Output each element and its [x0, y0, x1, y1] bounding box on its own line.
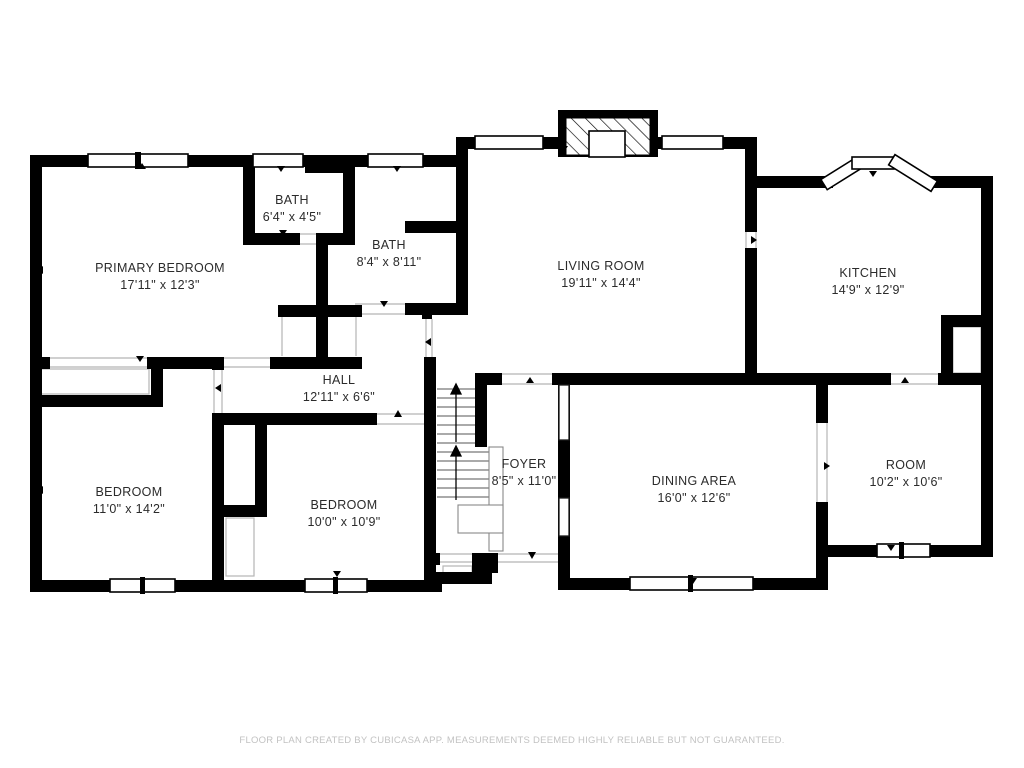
room-dimensions: 17'11" x 12'3": [120, 277, 199, 294]
room-name: PRIMARY BEDROOM: [95, 260, 225, 277]
room-name: BEDROOM: [310, 497, 377, 514]
floor-plan-svg: [0, 0, 1024, 768]
room-label-dining-area: DINING AREA 16'0" x 12'6": [652, 473, 736, 507]
room-dimensions: 10'2" x 10'6": [869, 474, 942, 491]
room-name: BEDROOM: [95, 484, 162, 501]
room-dimensions: 10'0" x 10'9": [307, 514, 380, 531]
room-label-bedroom-left: BEDROOM 11'0" x 14'2": [93, 484, 165, 518]
room-dimensions: 12'11" x 6'6": [303, 389, 375, 406]
room-name: KITCHEN: [839, 265, 896, 282]
room-label-primary-bedroom: PRIMARY BEDROOM 17'11" x 12'3": [95, 260, 225, 294]
room-dimensions: 16'0" x 12'6": [657, 490, 730, 507]
room-label-bedroom-middle: BEDROOM 10'0" x 10'9": [307, 497, 380, 531]
room-label-living-room: LIVING ROOM 19'11" x 14'4": [557, 258, 644, 292]
footer-disclaimer: FLOOR PLAN CREATED BY CUBICASA APP. MEAS…: [0, 735, 1024, 746]
room-dimensions: 14'9" x 12'9": [831, 282, 904, 299]
room-label-foyer: FOYER 8'5" x 11'0": [492, 456, 557, 490]
floor-plan: PRIMARY BEDROOM 17'11" x 12'3" BATH 6'4"…: [0, 0, 1024, 768]
room-name: BATH: [275, 192, 309, 209]
room-name: FOYER: [502, 456, 547, 473]
fireplace: [558, 110, 658, 157]
room-name: DINING AREA: [652, 473, 736, 490]
room-name: ROOM: [886, 457, 926, 474]
room-label-room: ROOM 10'2" x 10'6": [869, 457, 942, 491]
room-name: LIVING ROOM: [557, 258, 644, 275]
room-dimensions: 11'0" x 14'2": [93, 501, 165, 518]
room-label-hall: HALL 12'11" x 6'6": [303, 372, 375, 406]
room-label-bath-large: BATH 8'4" x 8'11": [357, 237, 422, 271]
room-label-bath-small: BATH 6'4" x 4'5": [263, 192, 322, 226]
room-label-kitchen: KITCHEN 14'9" x 12'9": [831, 265, 904, 299]
room-dimensions: 8'5" x 11'0": [492, 473, 557, 490]
room-dimensions: 6'4" x 4'5": [263, 209, 322, 226]
room-dimensions: 19'11" x 14'4": [561, 275, 640, 292]
room-name: BATH: [372, 237, 406, 254]
room-name: HALL: [323, 372, 356, 389]
room-dimensions: 8'4" x 8'11": [357, 254, 422, 271]
